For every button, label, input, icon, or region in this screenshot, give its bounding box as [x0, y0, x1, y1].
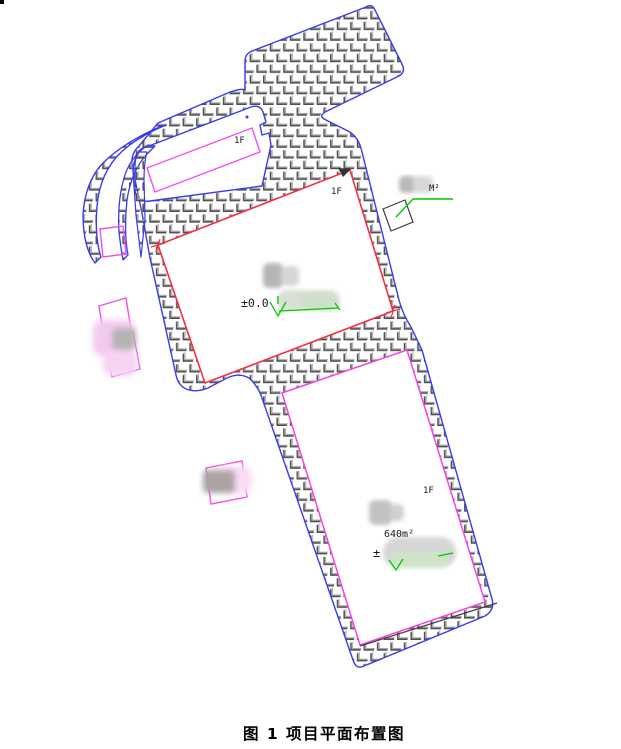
- redaction-main-name: [263, 263, 299, 288]
- site-plan-svg: 1F 1F 1F M² ±0.0 640m² ± 图 1 项目平面布置图: [0, 0, 621, 749]
- main-floor-label: 1F: [331, 187, 342, 197]
- redaction-west-outbuilding: [93, 320, 137, 376]
- south-elevation-prefix: ±: [373, 546, 380, 560]
- redaction-callout-label: [399, 176, 433, 193]
- main-elevation-label: ±0.0: [241, 296, 269, 310]
- corner-artifact: [0, 0, 4, 4]
- south-floor-label: 1F: [423, 486, 434, 496]
- redaction-southwest-outbuilding: [203, 466, 252, 494]
- survey-dot: [246, 116, 249, 119]
- south-area-label: 640m²: [384, 529, 414, 540]
- redaction-south-elevation: [383, 537, 456, 568]
- annex-floor-label: 1F: [234, 136, 245, 146]
- figure-caption: 图 1 项目平面布置图: [243, 724, 405, 743]
- callout-unit-label: M²: [429, 184, 440, 194]
- claw-band-fin: [133, 152, 147, 257]
- site-plan-figure: 1F 1F 1F M² ±0.0 640m² ± 图 1 项目平面布置图: [0, 0, 621, 749]
